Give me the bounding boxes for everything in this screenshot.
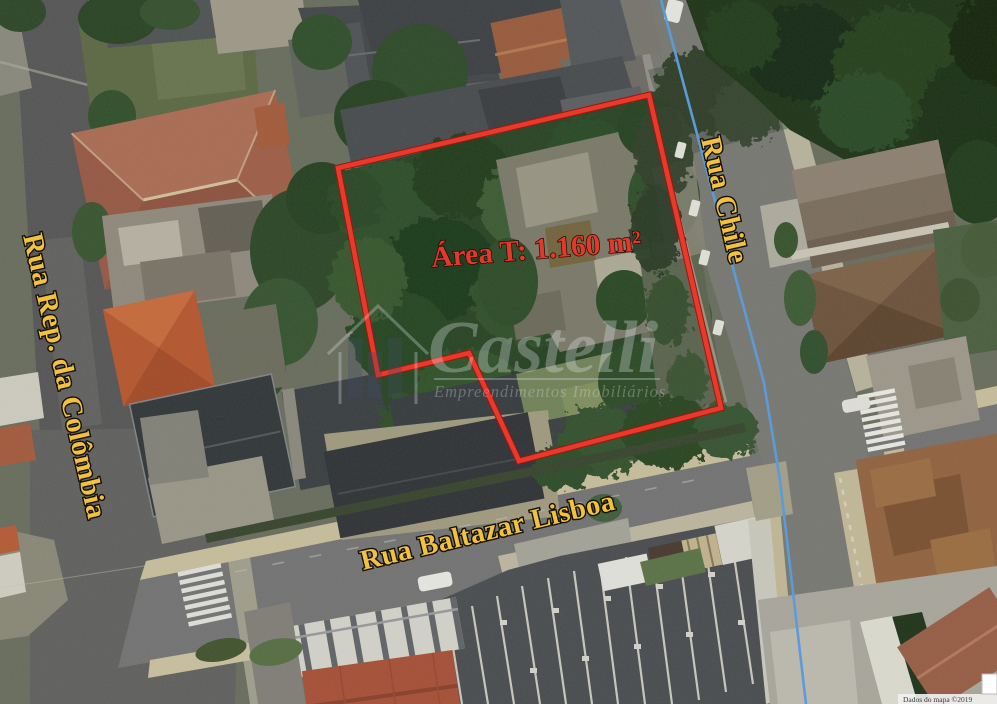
svg-text:Empreendimentos Imobiliários: Empreendimentos Imobiliários [433, 382, 666, 401]
svg-text:Castelli: Castelli [428, 307, 659, 389]
svg-text:Dados do mapa ©2019: Dados do mapa ©2019 [903, 695, 972, 704]
